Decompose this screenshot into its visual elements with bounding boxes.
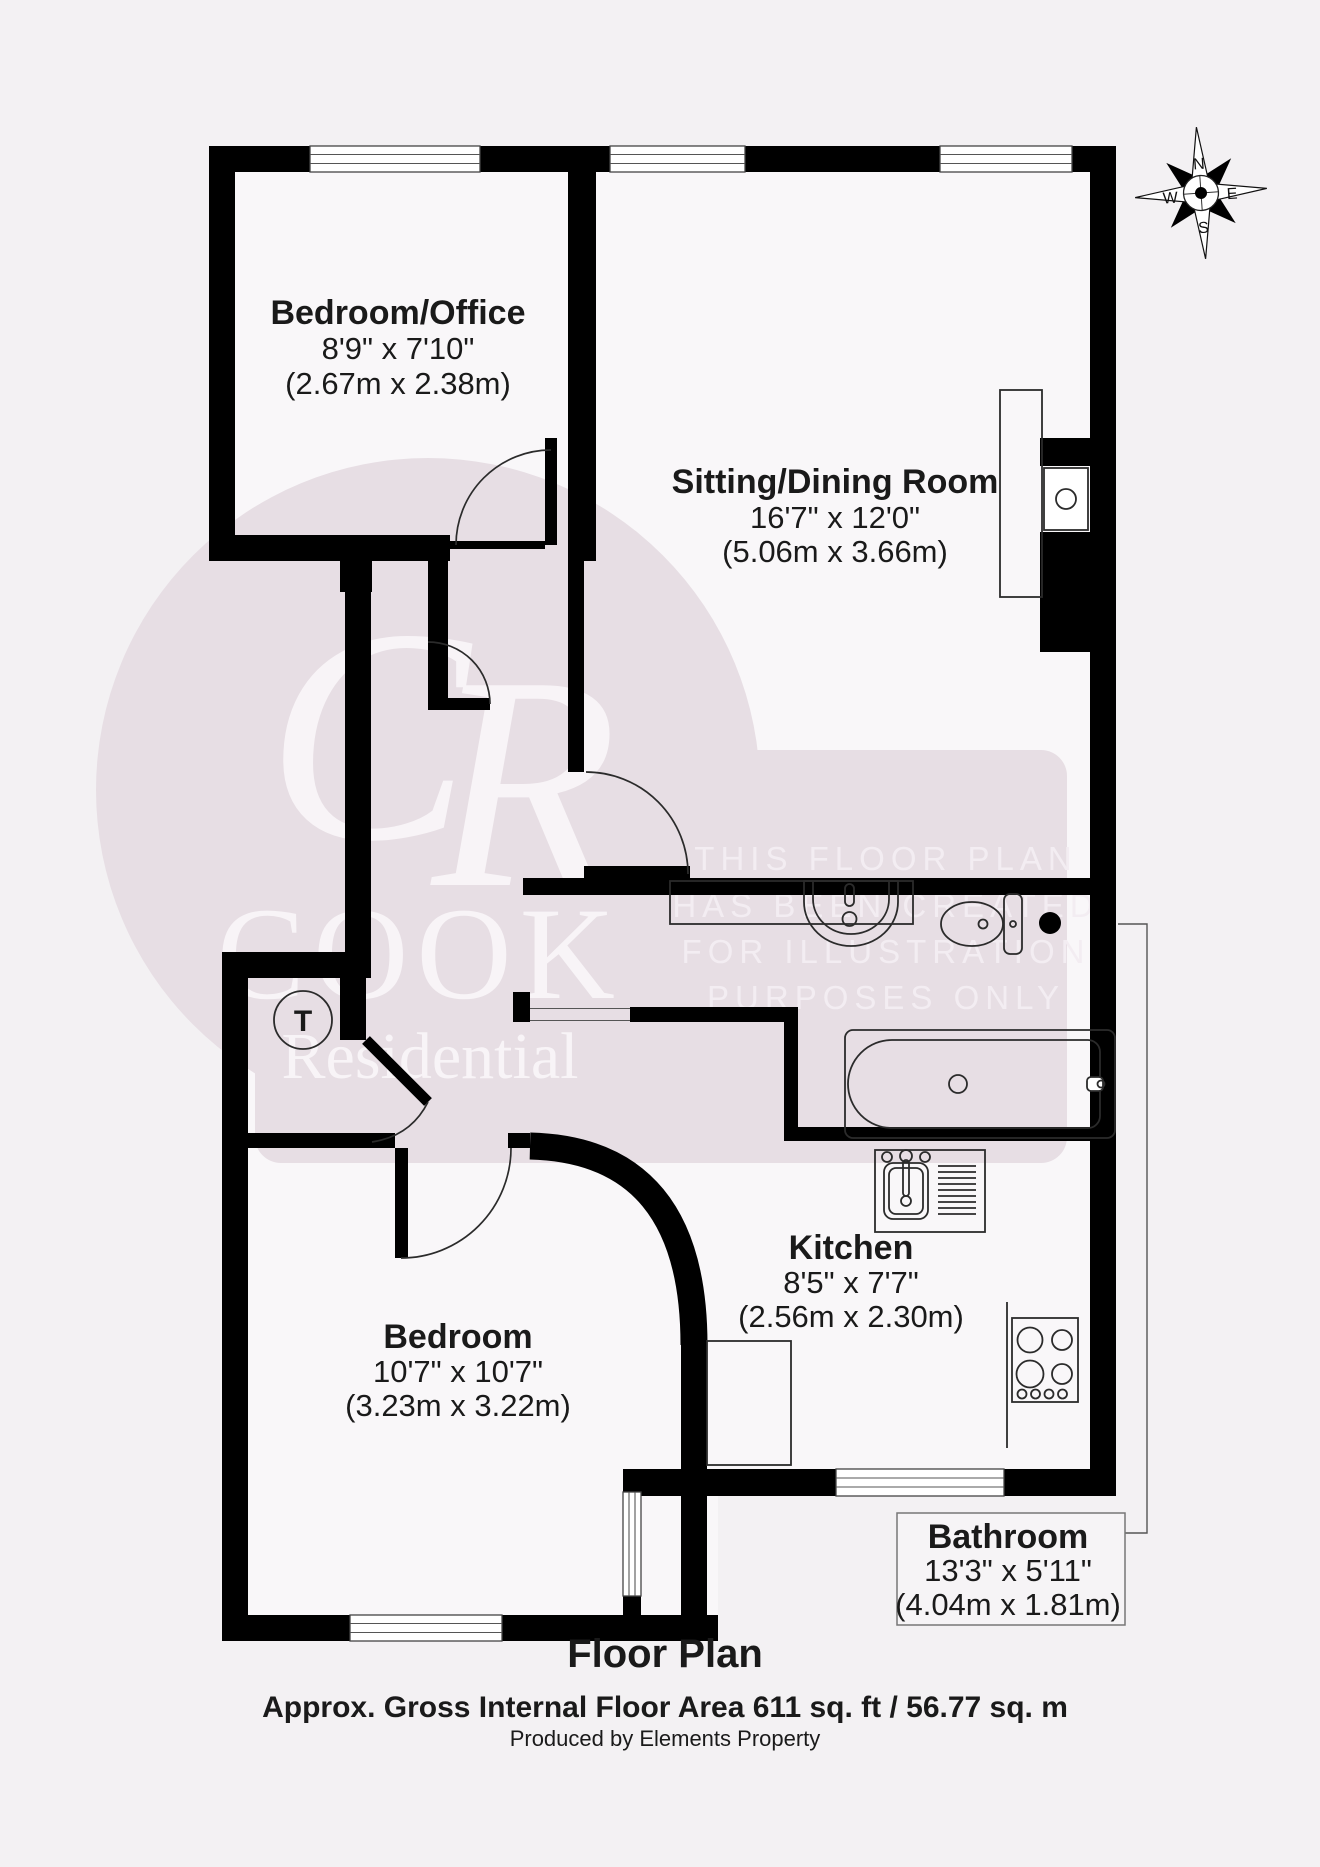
compass-e: E xyxy=(1226,185,1238,203)
notice-line-3: FOR ILLUSTRATION xyxy=(682,933,1091,970)
boiler xyxy=(1044,468,1088,530)
compass-rose: N S E W xyxy=(1131,123,1272,264)
watermark-brand-bottom: Residential xyxy=(282,1020,579,1093)
window xyxy=(940,146,1072,172)
floor-area-text: Approx. Gross Internal Floor Area 611 sq… xyxy=(262,1691,1068,1724)
window xyxy=(350,1615,502,1641)
svg-text:Bedroom/Office: Bedroom/Office xyxy=(270,294,525,332)
svg-text:13'3" x 5'11": 13'3" x 5'11" xyxy=(924,1553,1092,1588)
produced-by-text: Produced by Elements Property xyxy=(510,1726,821,1751)
svg-text:16'7" x 12'0": 16'7" x 12'0" xyxy=(750,500,920,535)
bath-tap xyxy=(1087,1077,1103,1091)
svg-text:Bedroom: Bedroom xyxy=(383,1318,532,1356)
svg-text:(5.06m x 3.66m): (5.06m x 3.66m) xyxy=(722,534,948,569)
floor-plan-title: Floor Plan xyxy=(567,1632,763,1676)
leader-line xyxy=(1118,924,1147,1533)
svg-text:8'5" x 7'7": 8'5" x 7'7" xyxy=(783,1265,919,1300)
svg-text:(2.56m x 2.30m): (2.56m x 2.30m) xyxy=(738,1299,964,1334)
room-label-bathroom: Bathroom 13'3" x 5'11" (4.04m x 1.81m) xyxy=(895,1518,1121,1622)
window xyxy=(610,146,745,172)
compass-s: S xyxy=(1198,220,1210,238)
svg-text:8'9" x 7'10": 8'9" x 7'10" xyxy=(322,331,475,366)
window xyxy=(310,146,480,172)
svg-text:Bathroom: Bathroom xyxy=(928,1518,1089,1556)
svg-text:Sitting/Dining Room: Sitting/Dining Room xyxy=(672,463,999,501)
window xyxy=(623,1492,641,1596)
svg-text:Kitchen: Kitchen xyxy=(789,1229,914,1267)
floor-plan-svg: C R COOK Residential THIS FLOOR PLAN HAS… xyxy=(0,0,1320,1867)
compass-w: W xyxy=(1162,190,1179,208)
svg-text:10'7" x 10'7": 10'7" x 10'7" xyxy=(373,1354,543,1389)
window xyxy=(836,1469,1004,1496)
compass-n: N xyxy=(1193,156,1206,174)
cylinder-label: T xyxy=(294,1005,312,1038)
svg-text:(3.23m x 3.22m): (3.23m x 3.22m) xyxy=(345,1388,571,1423)
svg-text:(4.04m x 1.81m): (4.04m x 1.81m) xyxy=(895,1587,1121,1622)
floor-plan-page: C R COOK Residential THIS FLOOR PLAN HAS… xyxy=(0,0,1320,1867)
notice-line-1: THIS FLOOR PLAN xyxy=(694,840,1077,877)
svg-text:(2.67m x 2.38m): (2.67m x 2.38m) xyxy=(285,366,511,401)
soil-pipe xyxy=(1039,912,1061,934)
